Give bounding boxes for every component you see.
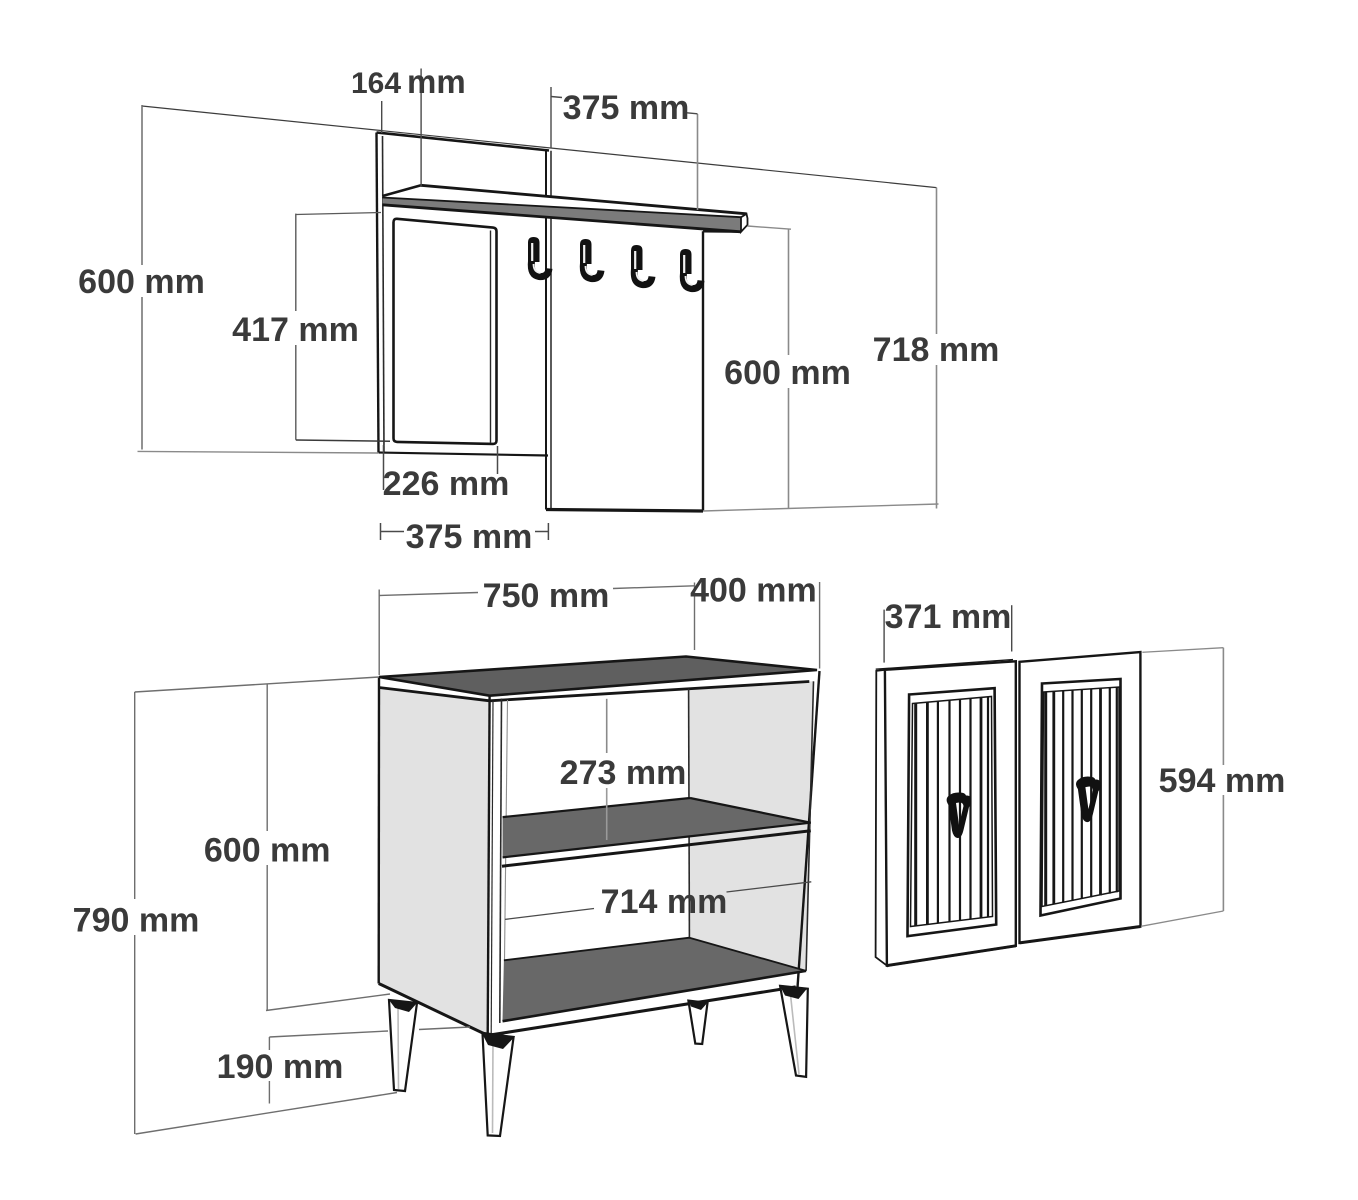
svg-text:226 mm: 226 mm [383, 465, 510, 503]
svg-text:790 mm: 790 mm [73, 901, 200, 939]
svg-text:273 mm: 273 mm [560, 754, 687, 792]
svg-text:594 mm: 594 mm [1159, 762, 1286, 800]
svg-text:375 mm: 375 mm [563, 89, 690, 127]
svg-text:400 mm: 400 mm [690, 572, 817, 610]
svg-text:190 mm: 190 mm [217, 1048, 344, 1086]
svg-text:600 mm: 600 mm [78, 263, 205, 301]
svg-text:714 mm: 714 mm [601, 883, 728, 921]
svg-text:164: 164 [351, 67, 401, 100]
svg-text:718 mm: 718 mm [873, 331, 1000, 369]
svg-text:750 mm: 750 mm [483, 577, 610, 615]
svg-text:600 mm: 600 mm [204, 831, 331, 869]
svg-text:371 mm: 371 mm [885, 598, 1012, 636]
svg-text:417 mm: 417 mm [232, 311, 359, 349]
svg-text:mm: mm [407, 63, 466, 100]
svg-text:375 mm: 375 mm [406, 518, 533, 556]
svg-text:600 mm: 600 mm [724, 354, 851, 392]
